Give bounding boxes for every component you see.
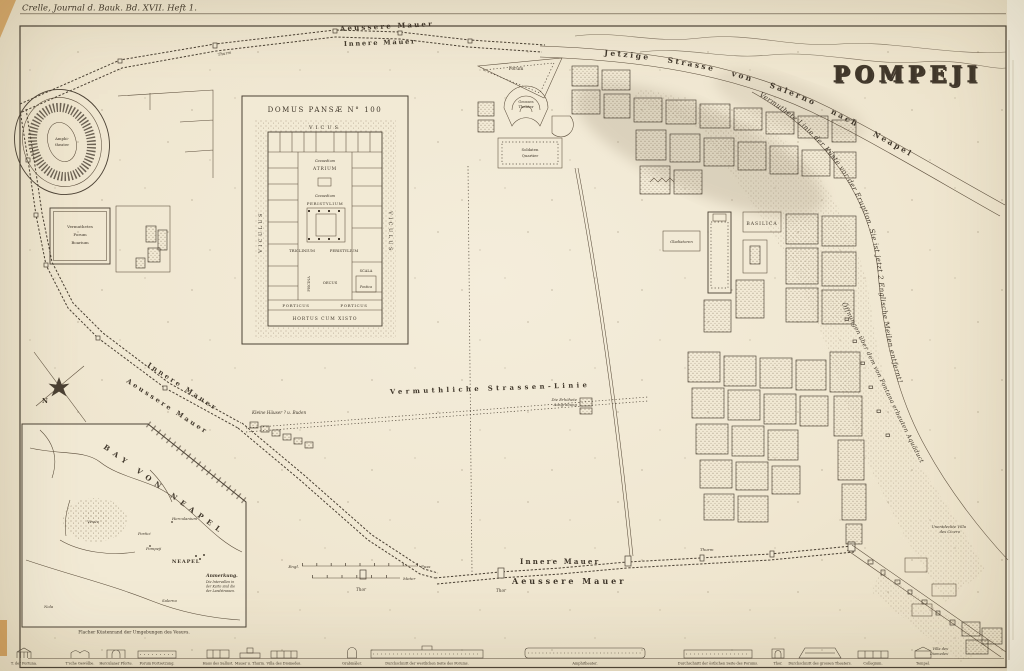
bay-vesuv-label: Vesuv — [87, 519, 100, 524]
frieze-caption: Grabmäler. — [342, 662, 362, 666]
cicero-villa-label-2: des Cicero — [940, 529, 961, 534]
scan-margin — [1007, 0, 1024, 671]
frieze-caption: Tempel. — [916, 662, 930, 666]
domus-atrium: ATRIUM — [312, 167, 337, 172]
bay-portici-label: Portici — [137, 531, 151, 536]
domus-vicus-label: VICUS — [308, 125, 341, 131]
bay-note-line-3: der Landstrassen. — [206, 589, 235, 593]
scale-fuss-label: Fuss — [420, 564, 430, 569]
domus-peristylium-a: PERISTYLIUM — [307, 201, 344, 206]
frieze-caption: Forum Fortsetzung. — [139, 662, 174, 666]
domus-cavaedium-b: Cavaedium — [315, 194, 336, 198]
domus-oecus: OECUS — [323, 280, 338, 285]
frieze-caption: Collegium. — [863, 662, 882, 666]
tombs-villa-label-2: Diomedes — [929, 652, 948, 656]
amphitheatre-label-2: theater — [55, 142, 69, 147]
tower-label-2: Thurm — [700, 547, 714, 552]
scale-meter-label: Meter — [402, 576, 416, 581]
frieze-caption: Haus des Sallust. — [203, 662, 234, 666]
basilica-label: BASILICA — [746, 221, 777, 227]
small-houses-label: Kleine Häuser ? u. Buden — [251, 410, 306, 415]
frieze-caption: T. der Fortuna. — [11, 662, 37, 666]
domus-viculus-right: VICULUS — [387, 210, 393, 253]
raised-excavation-label-2: Ausgrabung — [553, 402, 578, 407]
soldiers-quarter-label-2: Quartier — [522, 153, 539, 158]
bay-pompeji-label: Pompeji — [145, 546, 162, 551]
domus-hortus: HORTUS CUM XISTO — [292, 317, 357, 322]
tombs-villa-label-1: Villa des — [932, 647, 948, 651]
domus-title: DOMUS PANSÆ N° 100 — [268, 106, 383, 114]
forum-boarium-label-3: Boarium — [71, 240, 89, 245]
domus-viculus-left: VICULUS — [258, 211, 264, 254]
soldiers-quarter-label-1: Soldaten — [521, 147, 539, 152]
great-theatre-label-2: Theater — [518, 104, 533, 109]
bay-note-line-1: Die Intervallen in — [205, 580, 234, 584]
domus-peristylium-b: PERISTYLIUM — [330, 248, 359, 253]
domus-scala: SCALA — [360, 269, 373, 273]
book-edge-corner — [0, 0, 16, 38]
bay-nola-label: Nola — [43, 604, 54, 609]
amphitheatre-label-1: Amphi- — [54, 136, 69, 141]
pompeii-map-svg: Crelle, Journal d. Bauk. Bd. XVII. Heft … — [0, 0, 1024, 671]
frieze-caption: Durchschnitt der westlichen Seite des Fo… — [385, 662, 468, 666]
domus-porticus-b: PORTICUS — [340, 303, 367, 308]
outer-wall-label-bottom: Aeussere Mauer — [511, 576, 626, 586]
triangular-forum-label: Forum — [509, 67, 524, 72]
compass-north-label: N — [42, 397, 48, 405]
frieze-caption: Durchschnitt des grossen Theaters. — [788, 662, 851, 666]
frieze-caption: Thor. — [773, 662, 782, 666]
engraved-map-plate: Crelle, Journal d. Bauk. Bd. XVII. Heft … — [0, 0, 1024, 671]
inner-wall-label-bottom: Innere Mauer — [520, 557, 600, 566]
gate-label-2: Thor — [496, 588, 507, 593]
bay-note-line-2: der Karte sind die — [206, 585, 235, 589]
journal-reference: Crelle, Journal d. Bauk. Bd. XVII. Heft … — [22, 4, 197, 14]
bay-caption: Flacher Küstenrand der Umgebungen des Ve… — [78, 631, 190, 636]
bay-note-title: Anmerkung. — [205, 573, 238, 579]
frieze-caption: Amphitheater. — [571, 662, 597, 666]
book-edge-mark — [0, 620, 7, 656]
svg-text:POMPEJI: POMPEJI — [833, 62, 982, 88]
domus-pansa-inset: DOMUS PANSÆ N° 100 VICUS VICULUS VICULUS… — [242, 96, 408, 344]
domus-piscina: PISCINA — [307, 276, 311, 292]
forum-boarium-label-1: Vermuthetes — [66, 224, 93, 229]
plate-title: POMPEJI POMPEJI — [833, 62, 984, 90]
domus-postica: Postica — [359, 285, 372, 289]
frieze-caption: Durchschnitt der östlichen Seite des For… — [678, 662, 758, 666]
scale-engl-label: Engl. — [287, 564, 299, 569]
domus-triclinium: TRICLINIUM — [289, 248, 315, 253]
bay-salerno-label: Salerno — [162, 598, 178, 603]
bay-neapel-label: NEAPEL — [172, 559, 200, 565]
gladiators-label: Gladiatoren — [670, 239, 693, 244]
frieze-caption: Villa des Diomedes. — [266, 662, 302, 666]
gate-label-1: Thor — [356, 587, 367, 592]
frieze-caption: Herculaner Pforte. — [99, 662, 132, 666]
domus-cavaedium-a: Cavaedium — [315, 159, 336, 163]
domus-porticus-a: PORTICUS — [282, 303, 309, 308]
frieze-caption: Mauer u. Thurm. — [235, 662, 265, 666]
forum-boarium-label-2: Forum — [73, 232, 86, 237]
frieze-caption: T'sche Gewölbe. — [65, 662, 94, 666]
bay-herculanium-label: Herculanium — [171, 516, 198, 521]
